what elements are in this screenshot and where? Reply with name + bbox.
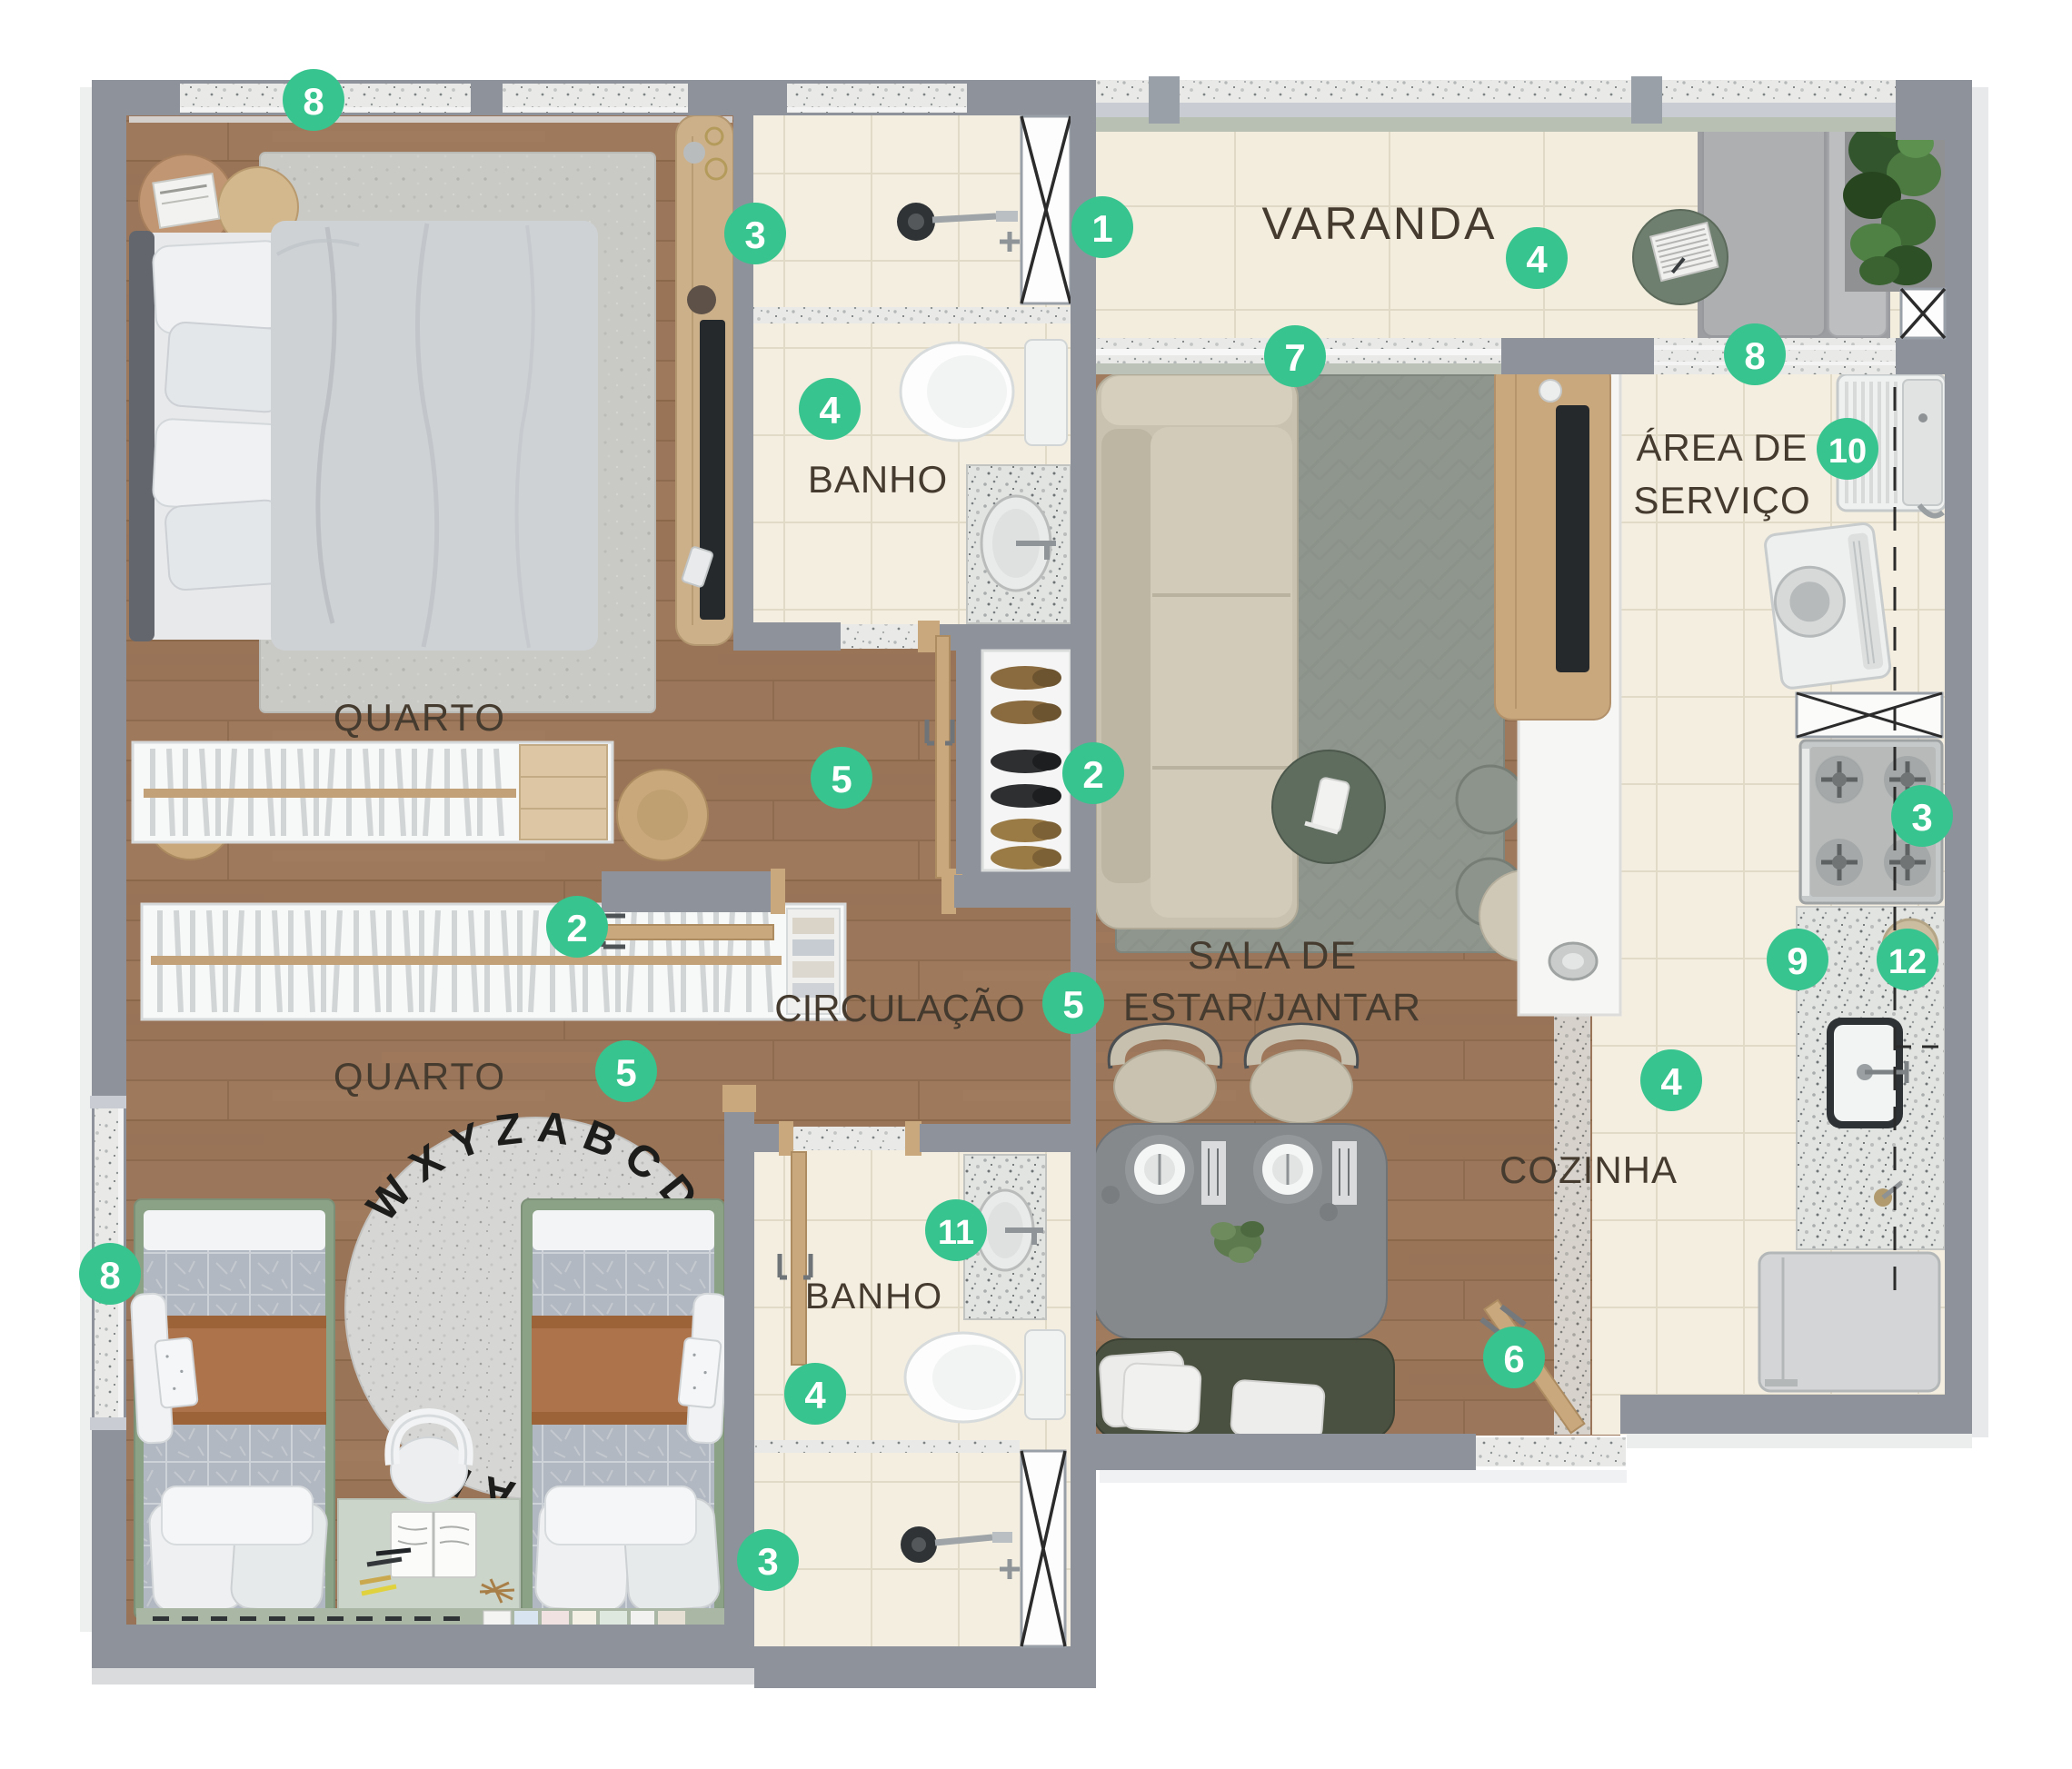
svg-text:COZINHA: COZINHA [1499,1148,1678,1191]
svg-text:QUARTO: QUARTO [334,696,506,739]
svg-text:3: 3 [757,1540,778,1583]
svg-text:7: 7 [1284,336,1305,379]
svg-text:10: 10 [1828,432,1867,471]
svg-text:ESTAR/JANTAR: ESTAR/JANTAR [1123,986,1421,1029]
svg-text:8: 8 [303,80,324,123]
svg-text:5: 5 [615,1051,636,1094]
svg-text:8: 8 [99,1254,120,1297]
svg-text:SERVIÇO: SERVIÇO [1633,479,1810,522]
svg-text:5: 5 [831,758,852,800]
svg-text:4: 4 [1526,238,1548,281]
svg-text:5: 5 [1062,983,1083,1026]
svg-text:QUARTO: QUARTO [334,1055,506,1098]
svg-text:3: 3 [1911,796,1932,839]
svg-text:11: 11 [938,1214,974,1252]
svg-text:12: 12 [1888,943,1927,981]
svg-text:SALA DE: SALA DE [1188,934,1357,978]
svg-text:BANHO: BANHO [805,1277,943,1317]
svg-text:9: 9 [1787,939,1808,982]
svg-text:ÁREA DE: ÁREA DE [1636,426,1808,469]
svg-text:4: 4 [1660,1060,1682,1103]
svg-text:8: 8 [1744,334,1765,377]
svg-text:1: 1 [1091,207,1112,250]
svg-text:VARANDA: VARANDA [1261,198,1497,249]
svg-text:2: 2 [566,907,587,949]
svg-text:BANHO: BANHO [808,458,948,501]
svg-text:4: 4 [804,1374,826,1416]
svg-text:4: 4 [819,389,841,432]
svg-text:3: 3 [744,214,765,256]
svg-text:2: 2 [1082,753,1103,796]
svg-text:6: 6 [1503,1337,1524,1380]
svg-text:CIRCULAÇÃO: CIRCULAÇÃO [774,987,1024,1029]
